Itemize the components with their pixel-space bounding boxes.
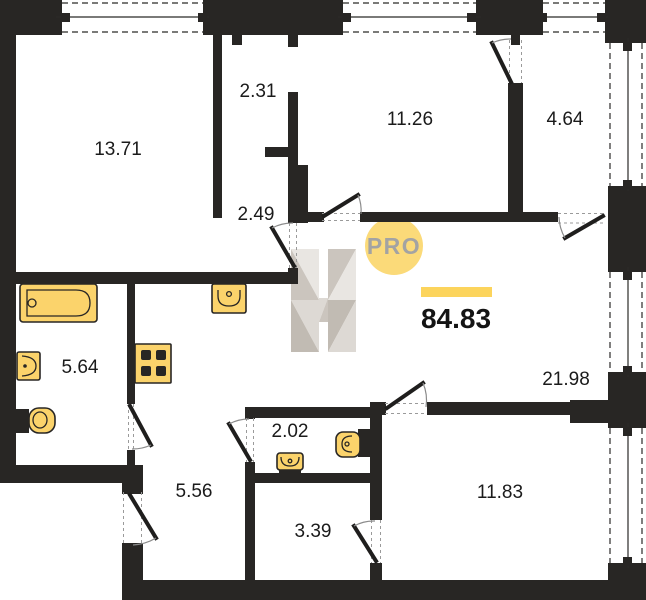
wall-segment (122, 483, 143, 494)
wall-segment (511, 35, 520, 45)
room-area-label: 11.26 (387, 109, 433, 130)
wall-segment (605, 0, 646, 43)
window-mullion (198, 13, 207, 22)
wall-segment (508, 83, 523, 218)
wc-sink (277, 453, 303, 474)
pro-badge-label: PRO (367, 233, 421, 259)
room-area-label: 3.39 (295, 521, 332, 542)
window-mullion (623, 271, 632, 280)
wall-segment (213, 35, 222, 218)
wall-segment (127, 284, 135, 404)
stove-icon (135, 344, 171, 383)
room-area-label: 2.02 (272, 421, 309, 442)
door-swing (558, 214, 605, 239)
door-swing (492, 39, 522, 83)
window-mullion (61, 13, 70, 22)
window-mullion (342, 13, 351, 22)
entrance-door-swing (124, 492, 157, 545)
wall-segment (245, 407, 382, 418)
room-area-label: 21.98 (542, 369, 590, 390)
wall-segment (298, 212, 324, 222)
room-area-label: 11.83 (477, 482, 523, 503)
wc-toilet (336, 429, 372, 457)
door-swing (229, 418, 254, 462)
window-mullion (597, 13, 606, 22)
total-area-label: 84.83 (421, 303, 491, 334)
window (610, 38, 642, 191)
door-swing (272, 223, 297, 268)
wall-segment (127, 450, 135, 465)
wall-segment (608, 372, 646, 428)
bathtub (20, 284, 97, 322)
wall-segment (476, 0, 543, 35)
kitchen-sink (212, 282, 246, 313)
wall-segment (265, 147, 290, 157)
window (56, 3, 209, 32)
wall-segment (570, 400, 608, 423)
window (610, 267, 642, 377)
wall-segment (608, 563, 646, 600)
accent-underline (421, 287, 492, 297)
wall-segment (608, 186, 646, 272)
window (538, 3, 608, 32)
window-mullion (623, 557, 632, 566)
door-swing (385, 383, 427, 414)
room-area-label: 13.71 (94, 139, 142, 160)
wash-basin (17, 352, 40, 380)
room-area-label: 5.64 (62, 357, 99, 378)
window-mullion (623, 366, 632, 375)
window-mullion (623, 42, 632, 51)
wall-segment (288, 33, 298, 47)
wall-segment (232, 35, 242, 45)
window-mullion (623, 180, 632, 189)
floor-plan-drawing: PRO 84.83 (0, 0, 646, 600)
brand-logo: PRO 84.83 (291, 217, 492, 352)
wall-segment (0, 0, 16, 483)
wall-segment (427, 402, 570, 415)
wall-segment (0, 465, 143, 483)
wall-segment (0, 272, 298, 284)
room-area-label: 2.49 (238, 204, 275, 225)
wall-segment (360, 212, 558, 222)
window (338, 3, 481, 32)
window (610, 423, 642, 568)
wall-segment (247, 473, 372, 483)
wall-segment (370, 563, 382, 600)
window-mullion (467, 13, 476, 22)
door-swing (354, 520, 381, 563)
window-mullion (538, 13, 547, 22)
room-area-label: 2.31 (240, 81, 277, 102)
window-mullion (623, 427, 632, 436)
room-area-label: 5.56 (176, 481, 213, 502)
room-area-label: 4.64 (547, 109, 584, 130)
wall-segment (288, 92, 298, 223)
toilet (16, 408, 55, 433)
door-swing (129, 404, 152, 450)
wall-segment (203, 0, 343, 35)
door-swing (322, 195, 361, 221)
wall-segment (122, 580, 646, 600)
logo-h-mark (291, 249, 356, 352)
floor-plan: PRO 84.83 (0, 0, 646, 600)
